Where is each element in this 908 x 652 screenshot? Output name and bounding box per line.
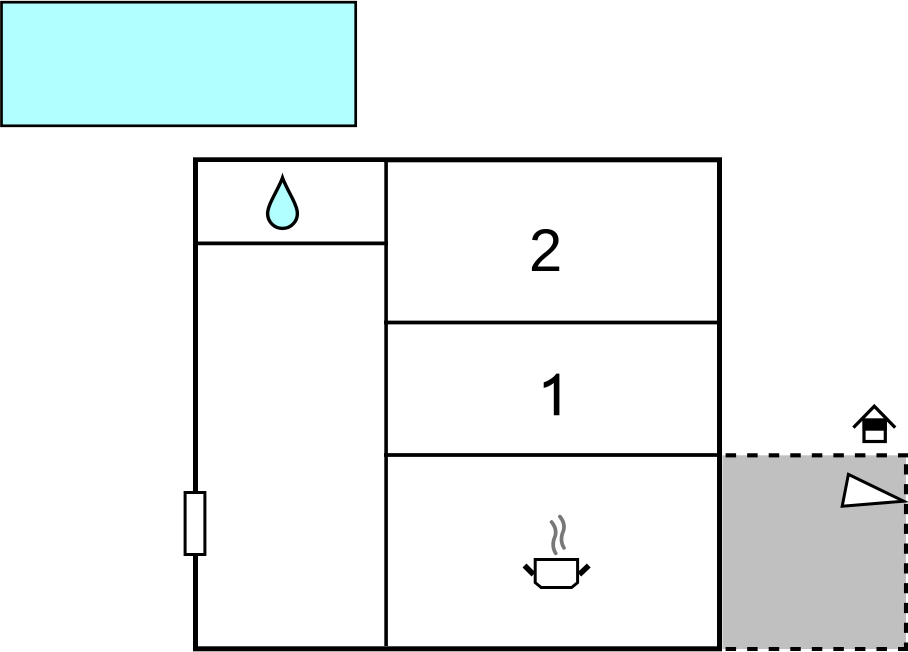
- svg-text:2: 2: [529, 217, 562, 284]
